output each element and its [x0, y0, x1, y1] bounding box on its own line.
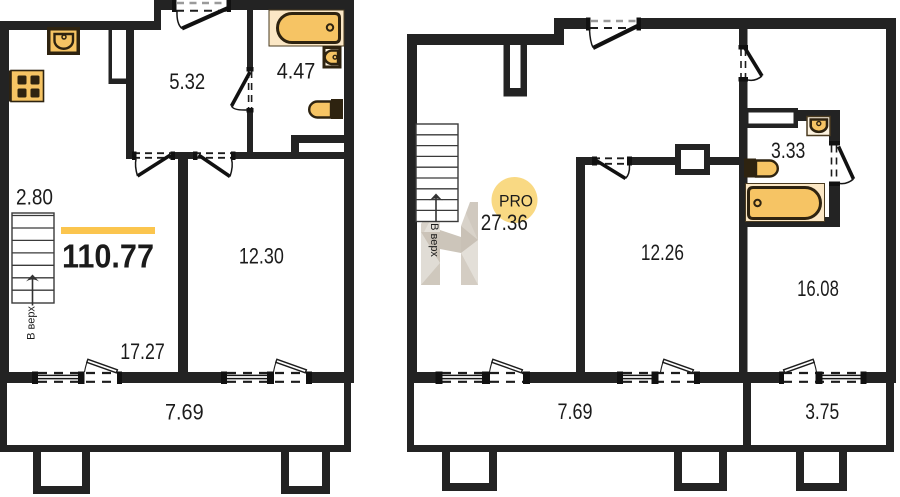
svg-text:7.69: 7.69 [165, 400, 204, 425]
svg-text:2.80: 2.80 [16, 184, 53, 209]
svg-text:12.26: 12.26 [641, 240, 684, 265]
svg-text:110.77: 110.77 [62, 239, 154, 276]
svg-text:12.30: 12.30 [239, 243, 284, 268]
svg-text:3.33: 3.33 [771, 138, 805, 163]
svg-text:7.69: 7.69 [558, 399, 593, 424]
svg-text:17.27: 17.27 [120, 339, 165, 364]
svg-text:PRO: PRO [499, 192, 533, 211]
svg-text:В верх: В верх [26, 306, 38, 340]
svg-text:4.47: 4.47 [277, 59, 316, 84]
svg-text:В верх: В верх [428, 223, 440, 257]
svg-text:27.36: 27.36 [481, 210, 528, 235]
svg-text:5.32: 5.32 [169, 69, 205, 94]
svg-text:16.08: 16.08 [797, 276, 839, 301]
svg-text:3.75: 3.75 [805, 399, 839, 424]
